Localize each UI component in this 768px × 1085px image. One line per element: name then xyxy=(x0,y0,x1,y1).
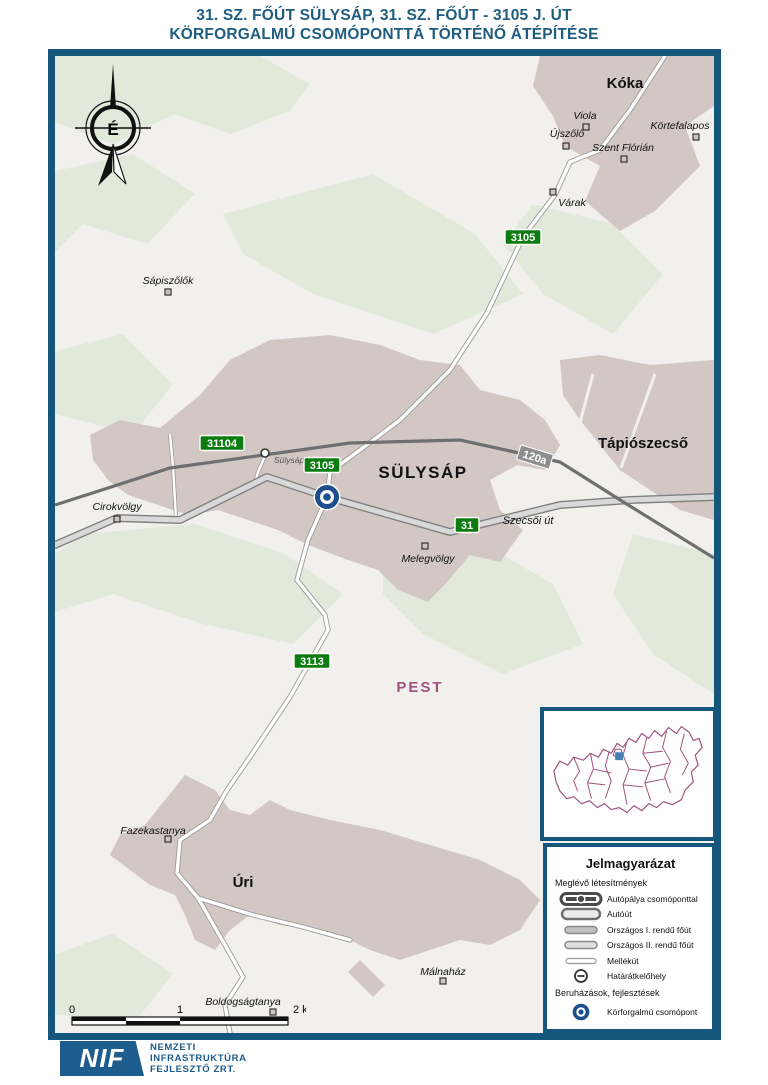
settlement-label-melegvolgy: Melegvölgy xyxy=(401,553,455,565)
compass-north-label: É xyxy=(107,120,118,139)
legend: Jelmagyarázat Meglévő létesítmények Autó… xyxy=(543,843,716,1033)
nif-logo-text: NIF xyxy=(80,1043,125,1074)
inset-map xyxy=(540,707,717,841)
legend-heading-investments: Beruházások, fejlesztések xyxy=(555,988,706,998)
settlement-label-szentflorian: Szent Flórián xyxy=(592,142,654,154)
settlement-label-viola: Viola xyxy=(573,110,596,122)
hungary-outline xyxy=(554,727,702,813)
minor-road-icon xyxy=(555,953,607,969)
svg-text:3105: 3105 xyxy=(310,460,334,472)
legend-item-secondary-road: Országos II. rendű főút xyxy=(555,938,706,954)
shield-3105-center: 3105 xyxy=(304,458,340,473)
map-frame: Kóka SÜLYSÁP Tápiószecső Úri PEST Sápisz… xyxy=(48,49,721,1040)
scale-bar: 0 1 2 km xyxy=(66,1003,306,1031)
nif-organisation-name: NEMZETI INFRASTRUKTÚRA FEJLESZTŐ ZRT. xyxy=(150,1042,247,1075)
railway-station-marker xyxy=(261,449,269,457)
scale-tick-1: 1 xyxy=(177,1004,183,1016)
legend-item-border-crossing: Határátkelőhely xyxy=(555,969,706,985)
shield-31: 31 xyxy=(455,518,479,533)
legend-title: Jelmagyarázat xyxy=(555,856,706,871)
station-label: Sülysáp xyxy=(274,455,305,465)
settlement-label-varak: Várak xyxy=(558,197,586,209)
settlement-label-kortefalapos: Körtefalapos xyxy=(651,120,711,132)
street-label-szecsoi-ut: Szecsői út xyxy=(503,515,555,527)
town-label-tapioszecso: Tápiószecső xyxy=(598,435,688,452)
legend-item-expressway: Autóút xyxy=(555,907,706,923)
legend-item-primary-road: Országos I. rendű főút xyxy=(555,922,706,938)
town-label-koka: Kóka xyxy=(607,75,644,92)
expressway-icon xyxy=(555,906,607,922)
town-label-sulysap: SÜLYSÁP xyxy=(378,463,467,482)
page: 31. SZ. FŐÚT SÜLYSÁP, 31. SZ. FŐÚT - 310… xyxy=(0,0,768,1085)
settlement-label-sapiszolok: Sápiszőlők xyxy=(143,275,195,287)
legend-item-motorway: Autópálya csomóponttal xyxy=(555,891,706,907)
svg-text:3113: 3113 xyxy=(300,656,324,668)
settlement-label-cirokvolgy: Cirokvölgy xyxy=(92,501,142,513)
settlement-label-fazekastanya: Fazekastanya xyxy=(120,825,186,837)
svg-text:3105: 3105 xyxy=(511,232,535,244)
county-label-pest: PEST xyxy=(396,679,443,696)
motorway-with-junction-icon xyxy=(555,891,607,907)
title-line-1: 31. SZ. FŐÚT SÜLYSÁP, 31. SZ. FŐÚT - 310… xyxy=(0,6,768,25)
national-primary-road-icon xyxy=(555,922,607,938)
town-label-uri: Úri xyxy=(233,873,254,891)
svg-text:31: 31 xyxy=(461,520,473,532)
shield-3113: 3113 xyxy=(294,654,330,669)
national-secondary-road-icon xyxy=(555,937,607,953)
legend-heading-existing: Meglévő létesítmények xyxy=(555,878,706,888)
legend-item-minor-road: Mellékút xyxy=(555,953,706,969)
scale-tick-0: 0 xyxy=(69,1004,75,1016)
project-location-marker xyxy=(615,752,623,760)
settlement-label-ujszolo: Újszőlő xyxy=(550,127,585,140)
nif-logo: NIF xyxy=(60,1041,144,1076)
shield-31104: 31104 xyxy=(200,436,244,451)
title-line-2: KÖRFORGALMÚ CSOMÓPONTTÁ TÖRTÉNŐ ÁTÉPÍTÉS… xyxy=(0,25,768,44)
hungary-inset-canvas xyxy=(544,711,713,837)
roundabout-junction-icon xyxy=(555,1002,607,1022)
border-crossing-icon xyxy=(555,968,607,984)
shield-3105-north: 3105 xyxy=(505,230,541,245)
scale-tick-2: 2 km xyxy=(293,1004,306,1016)
legend-item-roundabout: Körforgalmú csomópont xyxy=(555,1001,706,1023)
page-title: 31. SZ. FŐÚT SÜLYSÁP, 31. SZ. FŐÚT - 310… xyxy=(0,6,768,44)
roundabout-project-marker xyxy=(314,484,341,511)
svg-text:31104: 31104 xyxy=(207,438,238,450)
settlement-label-malnahaz: Málnaház xyxy=(420,966,466,978)
